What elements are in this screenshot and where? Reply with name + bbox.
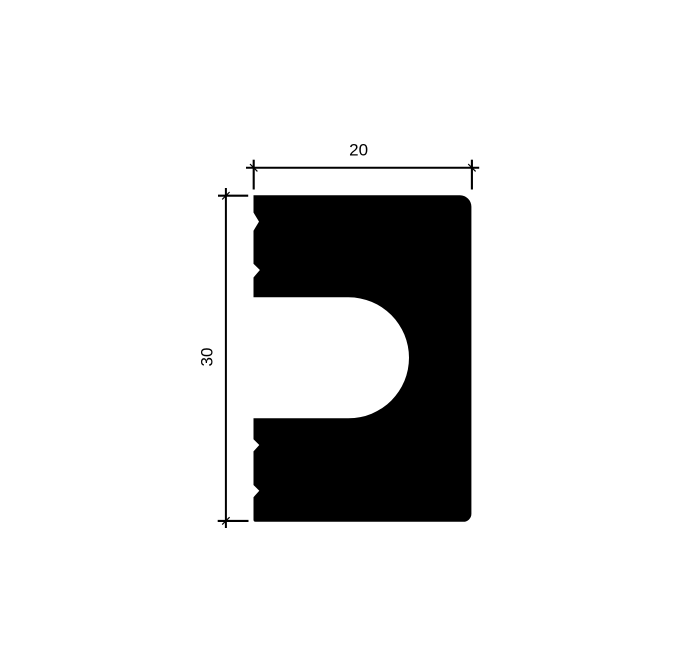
svg-text:30: 30: [198, 348, 217, 367]
svg-text:20: 20: [349, 141, 368, 160]
